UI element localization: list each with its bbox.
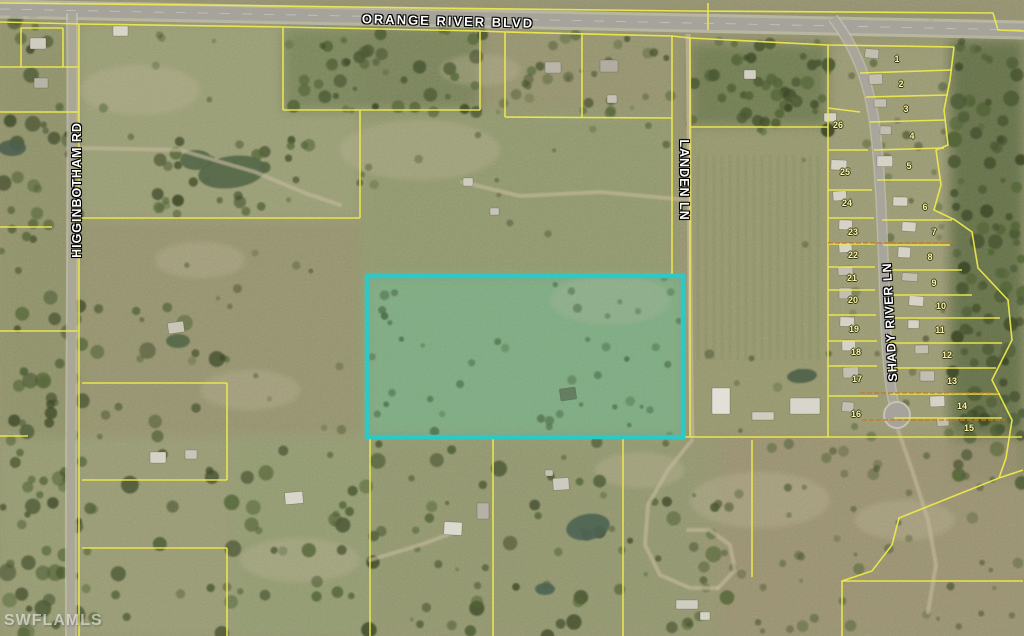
tree-blob — [15, 307, 29, 321]
tree-blob — [450, 72, 459, 81]
tree-blob — [534, 512, 541, 519]
tree-blob — [205, 470, 219, 484]
tree-blob — [630, 106, 635, 111]
tree-blob — [8, 415, 20, 427]
tree-blob — [48, 132, 61, 145]
tree-blob — [743, 55, 749, 61]
tree-blob — [128, 134, 135, 141]
tree-blob — [7, 206, 15, 214]
tree-blob — [1009, 391, 1020, 402]
tree-blob — [137, 355, 144, 362]
tree-blob — [409, 102, 420, 113]
tree-blob — [152, 188, 164, 200]
tree-blob — [561, 455, 567, 461]
tree-blob — [938, 82, 947, 91]
tree-blob — [650, 48, 659, 57]
tree-blob — [525, 93, 535, 103]
tree-blob — [38, 376, 51, 389]
tree-blob — [97, 434, 103, 440]
tree-blob — [734, 380, 740, 386]
lot-number-label: 16 — [851, 409, 861, 419]
road-label: LANDEN LN — [677, 139, 691, 220]
tree-blob — [400, 76, 407, 83]
tree-blob — [494, 178, 499, 183]
tree-blob — [292, 261, 300, 269]
tree-blob — [984, 157, 996, 169]
lot-number-label: 5 — [906, 161, 911, 171]
tree-blob — [258, 465, 273, 480]
tree-blob — [447, 445, 456, 454]
tree-blob — [552, 148, 556, 152]
tree-blob — [101, 410, 111, 420]
tree-blob — [706, 546, 722, 562]
tree-blob — [224, 495, 240, 511]
tree-blob — [666, 511, 680, 525]
tree-blob — [810, 100, 819, 109]
tree-blob — [734, 489, 743, 498]
tree-blob — [999, 378, 1008, 387]
building — [877, 156, 893, 167]
tree-blob — [287, 142, 295, 150]
tree-blob — [252, 250, 259, 257]
road-surface — [71, 13, 73, 636]
building — [490, 208, 499, 215]
tree-blob — [471, 596, 483, 608]
tree-blob — [978, 123, 985, 130]
tree-blob — [966, 273, 977, 284]
lot-number-label: 6 — [922, 202, 927, 212]
tree-blob — [689, 542, 699, 552]
lot-number-label: 20 — [848, 295, 858, 305]
tree-blob — [511, 89, 522, 100]
building — [185, 450, 197, 459]
building — [937, 418, 949, 427]
tree-blob — [544, 230, 551, 237]
tree-blob — [46, 393, 57, 404]
tree-blob — [662, 440, 669, 447]
tree-blob — [947, 582, 955, 590]
tree-blob — [471, 81, 480, 90]
tree-blob — [962, 306, 973, 317]
tree-blob — [952, 203, 960, 211]
tree-blob — [162, 303, 172, 313]
tree-blob — [642, 93, 649, 100]
tree-blob — [15, 588, 28, 601]
lot-number-label: 8 — [927, 252, 932, 262]
building — [908, 320, 919, 329]
lot-number-label: 3 — [903, 104, 908, 114]
tree-blob — [372, 58, 380, 66]
tree-blob — [188, 356, 197, 365]
tree-blob — [434, 560, 442, 568]
tree-blob — [94, 304, 103, 313]
tree-blob — [791, 77, 801, 87]
tree-blob — [950, 189, 958, 197]
tree-blob — [784, 484, 792, 492]
tree-blob — [738, 428, 743, 433]
tree-blob — [990, 424, 1003, 437]
tree-blob — [20, 424, 35, 439]
tree-blob — [958, 262, 971, 275]
tree-blob — [28, 476, 36, 484]
lot-number-label: 25 — [840, 167, 850, 177]
tree-blob — [90, 505, 98, 513]
building — [600, 60, 618, 72]
tree-blob — [727, 84, 736, 93]
tree-blob — [365, 164, 372, 171]
tree-blob — [55, 103, 63, 111]
tree-blob — [1003, 91, 1019, 107]
tree-blob — [469, 50, 483, 64]
tree-blob — [821, 453, 831, 463]
tree-blob — [430, 453, 444, 467]
tree-blob — [139, 317, 144, 322]
tree-blob — [802, 241, 809, 248]
tree-blob — [576, 478, 584, 486]
tree-blob — [961, 348, 968, 355]
tree-blob — [779, 560, 786, 567]
tree-blob — [812, 108, 818, 114]
tree-blob — [167, 501, 179, 513]
tree-blob — [345, 507, 354, 516]
tree-blob — [284, 40, 293, 49]
tree-blob — [524, 74, 534, 84]
tree-blob — [425, 513, 435, 523]
tree-blob — [655, 555, 662, 562]
tree-blob — [332, 521, 338, 527]
tree-blob — [663, 55, 669, 61]
tree-blob — [992, 223, 999, 230]
tree-blob — [797, 553, 805, 561]
tree-blob — [759, 584, 766, 591]
tree-blob — [978, 185, 987, 194]
lot-number-label: 24 — [842, 198, 852, 208]
tree-blob — [772, 78, 783, 89]
tree-blob — [90, 345, 104, 359]
tree-blob — [1013, 239, 1020, 246]
tree-blob — [870, 59, 878, 67]
building — [915, 345, 929, 354]
tree-blob — [321, 425, 327, 431]
tree-blob — [958, 283, 965, 290]
tree-blob — [999, 268, 1010, 279]
tree-blob — [1000, 178, 1005, 183]
tree-blob — [207, 584, 215, 592]
tree-blob — [829, 447, 837, 455]
tree-blob — [298, 84, 310, 96]
lot-number-label: 26 — [833, 120, 843, 130]
tree-blob — [982, 343, 994, 355]
tree-blob — [311, 591, 321, 601]
tree-blob — [692, 493, 696, 497]
building — [909, 296, 924, 307]
tree-blob — [286, 197, 291, 202]
tree-blob — [715, 37, 724, 46]
pond — [166, 334, 190, 348]
tree-blob — [609, 526, 615, 532]
tree-blob — [303, 139, 316, 152]
tree-blob — [115, 403, 123, 411]
tree-blob — [408, 475, 415, 482]
tree-blob — [189, 177, 198, 186]
tree-blob — [212, 39, 217, 44]
tree-blob — [55, 359, 65, 369]
building — [893, 197, 908, 206]
building — [920, 371, 934, 381]
tree-blob — [988, 234, 1003, 249]
lot-number-label: 15 — [964, 423, 974, 433]
tree-blob — [499, 98, 509, 108]
tree-blob — [797, 620, 809, 632]
tree-blob — [840, 470, 848, 478]
tree-blob — [370, 453, 386, 469]
building — [865, 48, 879, 58]
tree-blob — [6, 560, 15, 569]
building — [930, 396, 945, 407]
tree-blob — [255, 527, 263, 535]
highlighted-parcel-outline — [367, 276, 683, 437]
lot-number-label: 18 — [851, 347, 861, 357]
tree-blob — [45, 407, 57, 419]
tree-blob — [293, 176, 300, 183]
tree-blob — [121, 476, 139, 494]
tree-blob — [791, 96, 797, 102]
tree-blob — [978, 611, 984, 617]
lot-number-label: 9 — [931, 278, 936, 288]
tree-blob — [111, 590, 120, 599]
tree-blob — [152, 430, 164, 442]
tree-blob — [698, 561, 709, 572]
tree-blob — [800, 53, 807, 60]
tree-blob — [600, 492, 607, 499]
tree-blob — [589, 126, 596, 133]
tree-blob — [241, 207, 250, 216]
tree-blob — [17, 520, 27, 530]
tree-blob — [48, 313, 61, 326]
tree-blob — [175, 137, 185, 147]
tree-blob — [802, 158, 807, 163]
mls-watermark: SWFLAMLS — [4, 612, 103, 630]
tree-blob — [931, 169, 937, 175]
tree-blob — [1000, 281, 1013, 294]
tree-blob — [666, 622, 678, 634]
tree-blob — [482, 564, 489, 571]
building — [902, 222, 917, 232]
tree-blob — [10, 457, 21, 468]
tree-blob — [818, 94, 827, 103]
tree-blob — [333, 93, 339, 99]
tree-blob — [172, 195, 184, 207]
tree-blob — [704, 70, 716, 82]
tree-blob — [905, 535, 913, 543]
tree-blob — [353, 51, 365, 63]
tree-blob — [332, 586, 344, 598]
tree-blob — [42, 546, 52, 556]
tree-blob — [908, 198, 914, 204]
tree-blob — [873, 465, 880, 472]
tree-blob — [853, 563, 864, 574]
tree-blob — [314, 79, 324, 89]
tree-blob — [700, 576, 708, 584]
tree-blob — [909, 368, 917, 376]
tree-blob — [27, 179, 40, 192]
tree-blob — [936, 617, 940, 621]
building — [898, 247, 911, 258]
tree-blob — [624, 36, 630, 42]
tree-blob — [22, 373, 38, 389]
tree-blob — [445, 94, 451, 100]
tree-blob — [958, 178, 964, 184]
tree-blob — [985, 99, 992, 106]
tree-blob — [613, 40, 622, 49]
tree-blob — [158, 34, 166, 42]
tree-blob — [344, 59, 351, 66]
tree-blob — [148, 415, 162, 429]
tree-blob — [21, 555, 36, 570]
tree-blob — [784, 439, 794, 449]
tree-blob — [353, 87, 358, 92]
tree-blob — [972, 304, 981, 313]
tree-blob — [570, 30, 581, 41]
tree-blob — [335, 362, 343, 370]
tree-blob — [328, 59, 338, 69]
tree-blob — [77, 457, 87, 467]
lot-number-label: 23 — [848, 227, 858, 237]
tree-blob — [755, 619, 762, 626]
tree-blob — [123, 613, 131, 621]
building — [545, 470, 553, 476]
tree-blob — [958, 111, 970, 123]
tree-blob — [410, 617, 414, 621]
tree-blob — [426, 501, 437, 512]
tree-blob — [853, 552, 857, 556]
tree-blob — [2, 593, 17, 608]
tree-blob — [176, 589, 186, 599]
building — [34, 78, 48, 88]
tree-blob — [392, 100, 405, 113]
tree-blob — [584, 98, 594, 108]
tree-blob — [1011, 221, 1020, 230]
tree-blob — [372, 103, 379, 110]
lot-number-label: 4 — [909, 131, 914, 141]
tree-blob — [162, 197, 170, 205]
tree-blob — [760, 117, 771, 128]
tree-blob — [988, 568, 993, 573]
tree-blob — [997, 115, 1008, 126]
tree-blob — [271, 547, 278, 554]
lot-number-label: 21 — [847, 273, 857, 283]
tree-blob — [207, 97, 213, 103]
tree-blob — [737, 570, 746, 579]
tree-blob — [337, 545, 347, 555]
tree-blob — [731, 40, 738, 47]
tree-blob — [342, 105, 349, 112]
tree-blob — [980, 204, 993, 217]
tree-blob — [714, 500, 722, 508]
tree-blob — [955, 63, 964, 72]
tree-blob — [874, 351, 880, 357]
tree-blob — [299, 75, 310, 86]
tree-blob — [383, 69, 389, 75]
lot-number-label: 11 — [935, 325, 945, 335]
building — [463, 178, 473, 186]
tree-blob — [25, 499, 41, 515]
tree-blob — [799, 579, 803, 583]
tree-blob — [962, 472, 970, 480]
lot-number-label: 13 — [947, 376, 957, 386]
tree-blob — [851, 423, 858, 430]
tree-blob — [191, 349, 199, 357]
tree-blob — [99, 103, 108, 112]
tree-blob — [705, 349, 715, 359]
tree-blob — [447, 620, 457, 630]
tree-blob — [958, 38, 965, 45]
tree-blob — [308, 269, 313, 274]
tree-blob — [977, 285, 983, 291]
tree-blob — [413, 60, 426, 73]
tree-blob — [223, 356, 230, 363]
tree-blob — [156, 204, 164, 212]
building — [744, 70, 756, 79]
lot-number-label: 1 — [894, 54, 899, 64]
building — [676, 600, 698, 609]
tree-blob — [580, 107, 588, 115]
tree-blob — [953, 249, 962, 258]
tree-blob — [970, 44, 979, 53]
tree-blob — [191, 403, 201, 413]
tree-blob — [554, 548, 563, 557]
tree-blob — [802, 485, 807, 490]
tree-blob — [337, 425, 346, 434]
tree-blob — [665, 91, 675, 101]
tree-blob — [412, 527, 419, 534]
tree-blob — [16, 449, 24, 457]
tree-blob — [992, 143, 1003, 154]
tree-blob — [8, 225, 17, 234]
tree-blob — [260, 590, 271, 601]
tree-blob — [327, 452, 333, 458]
tree-blob — [563, 72, 574, 83]
tree-blob — [22, 232, 31, 241]
tree-blob — [334, 74, 347, 87]
road-label: HIGGINBOTHAM RD — [70, 122, 84, 258]
tree-blob — [424, 88, 438, 102]
tree-blob — [15, 267, 22, 274]
tree-blob — [1010, 265, 1018, 273]
tree-blob — [591, 71, 597, 77]
tree-blob — [163, 161, 173, 171]
tree-blob — [111, 566, 126, 581]
tree-blob — [724, 502, 734, 512]
tree-blob — [43, 220, 54, 231]
tree-blob — [479, 481, 488, 490]
tree-blob — [40, 122, 47, 129]
tree-blob — [936, 234, 942, 240]
tree-blob — [1009, 612, 1015, 618]
tree-blob — [542, 74, 553, 85]
building — [545, 62, 561, 73]
building — [167, 321, 184, 334]
lot-number-label: 22 — [848, 250, 858, 260]
tree-blob — [618, 546, 626, 554]
tree-blob — [445, 501, 450, 506]
tree-blob — [906, 489, 913, 496]
tree-blob — [333, 511, 340, 518]
tree-blob — [318, 90, 331, 103]
tree-blob — [923, 452, 930, 459]
tree-blob — [1006, 57, 1018, 69]
tree-blob — [732, 55, 742, 65]
